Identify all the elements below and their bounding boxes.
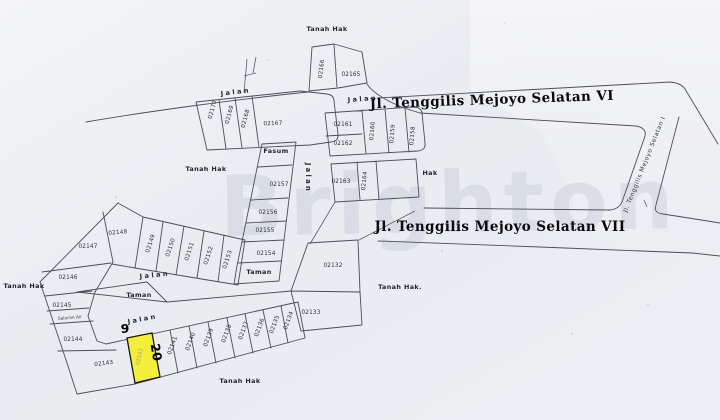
label-tanah-hak: Tanah Hak xyxy=(307,25,348,33)
label-02167: 02167 xyxy=(263,121,282,128)
label-02162: 02162 xyxy=(333,141,352,147)
label-02147: 02147 xyxy=(78,244,97,250)
label-fasum: Fasum xyxy=(263,147,288,155)
label-20: 20 xyxy=(148,342,166,362)
label-02133: 02133 xyxy=(301,310,320,316)
label-9: 9 xyxy=(121,321,130,336)
label-02154: 02154 xyxy=(256,251,275,257)
label-tanah-hak: Tanah Hak xyxy=(220,377,261,385)
label-02156: 02156 xyxy=(258,210,277,216)
label-02155: 02155 xyxy=(255,228,274,234)
map-canvas: Brighton xyxy=(0,0,720,420)
label-tanah-hak: Tanah Hak xyxy=(4,282,45,290)
label-02161: 02161 xyxy=(333,122,352,128)
label-02132: 02132 xyxy=(323,263,342,269)
label-02146: 02146 xyxy=(58,275,77,281)
label-jalan: Jalan xyxy=(304,162,312,193)
watermark-text: Brighton xyxy=(219,150,680,256)
label-02165: 02165 xyxy=(341,72,360,78)
label-tanah-hak-: Tanah Hak. xyxy=(378,283,422,291)
label-02144: 02144 xyxy=(63,337,82,343)
label-taman: Taman xyxy=(246,268,271,276)
label-02157: 02157 xyxy=(269,182,288,188)
label-02163: 02163 xyxy=(331,179,350,185)
label-tanah-hak: Tanah Hak xyxy=(186,165,227,173)
label-jl-tenggilis-mejoyo-selatan-vii: Jl. Tenggilis Mejoyo Selatan VII xyxy=(374,219,626,235)
label-hak: Hak xyxy=(422,169,437,177)
scanned-parcel-map: Brighton xyxy=(0,0,720,420)
label-02145: 02145 xyxy=(52,303,71,309)
label-taman: Taman xyxy=(126,291,151,299)
